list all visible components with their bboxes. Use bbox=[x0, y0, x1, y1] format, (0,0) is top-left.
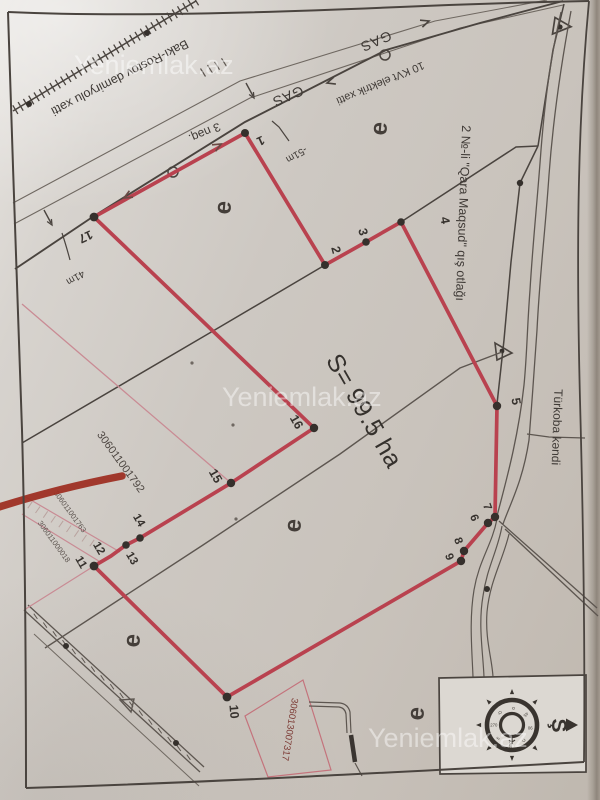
svg-text:Yeniemlak.az: Yeniemlak.az bbox=[74, 50, 234, 80]
svg-text:13: 13 bbox=[123, 550, 140, 567]
svg-text:17: 17 bbox=[76, 227, 95, 246]
svg-text:ə: ə bbox=[367, 121, 395, 137]
svg-text:Yeniemlak.az: Yeniemlak.az bbox=[368, 723, 528, 753]
svg-text:4: 4 bbox=[437, 216, 452, 225]
svg-text:3: 3 bbox=[355, 227, 370, 237]
svg-text:15: 15 bbox=[206, 466, 225, 485]
svg-text:90: 90 bbox=[527, 726, 532, 731]
svg-text:10 KVt elektrik xətti: 10 KVt elektrik xətti bbox=[334, 59, 425, 107]
svg-text:306011001792: 306011001792 bbox=[94, 429, 146, 495]
svg-text:306013007317: 306013007317 bbox=[279, 697, 300, 761]
svg-text:14: 14 bbox=[130, 512, 147, 530]
svg-text:ə: ə bbox=[211, 200, 239, 216]
svg-text:6: 6 bbox=[467, 513, 480, 523]
svg-text:41m: 41m bbox=[64, 268, 86, 287]
svg-text:Türkoba kəndi: Türkoba kəndi bbox=[549, 389, 566, 465]
svg-text:8: 8 bbox=[451, 536, 465, 547]
svg-text:11: 11 bbox=[72, 554, 89, 571]
svg-text:ə: ə bbox=[404, 706, 432, 722]
svg-text:3 nəq.: 3 nəq. bbox=[186, 120, 222, 146]
svg-text:-51m: -51m bbox=[284, 144, 309, 165]
svg-text:7: 7 bbox=[480, 502, 493, 512]
svg-text:2: 2 bbox=[328, 245, 343, 255]
svg-text:1: 1 bbox=[255, 133, 267, 149]
svg-text:ə: ə bbox=[120, 633, 148, 649]
svg-text:2 №-li "Qara Maqsud" qış otlağ: 2 №-li "Qara Maqsud" qış otlağı bbox=[453, 125, 473, 301]
svg-text:9: 9 bbox=[442, 552, 455, 562]
svg-text:ə: ə bbox=[281, 518, 309, 534]
svg-text:Yeniemlak.az: Yeniemlak.az bbox=[222, 382, 382, 412]
svg-text:GAS: GAS bbox=[270, 83, 306, 110]
svg-text:10: 10 bbox=[226, 704, 241, 719]
